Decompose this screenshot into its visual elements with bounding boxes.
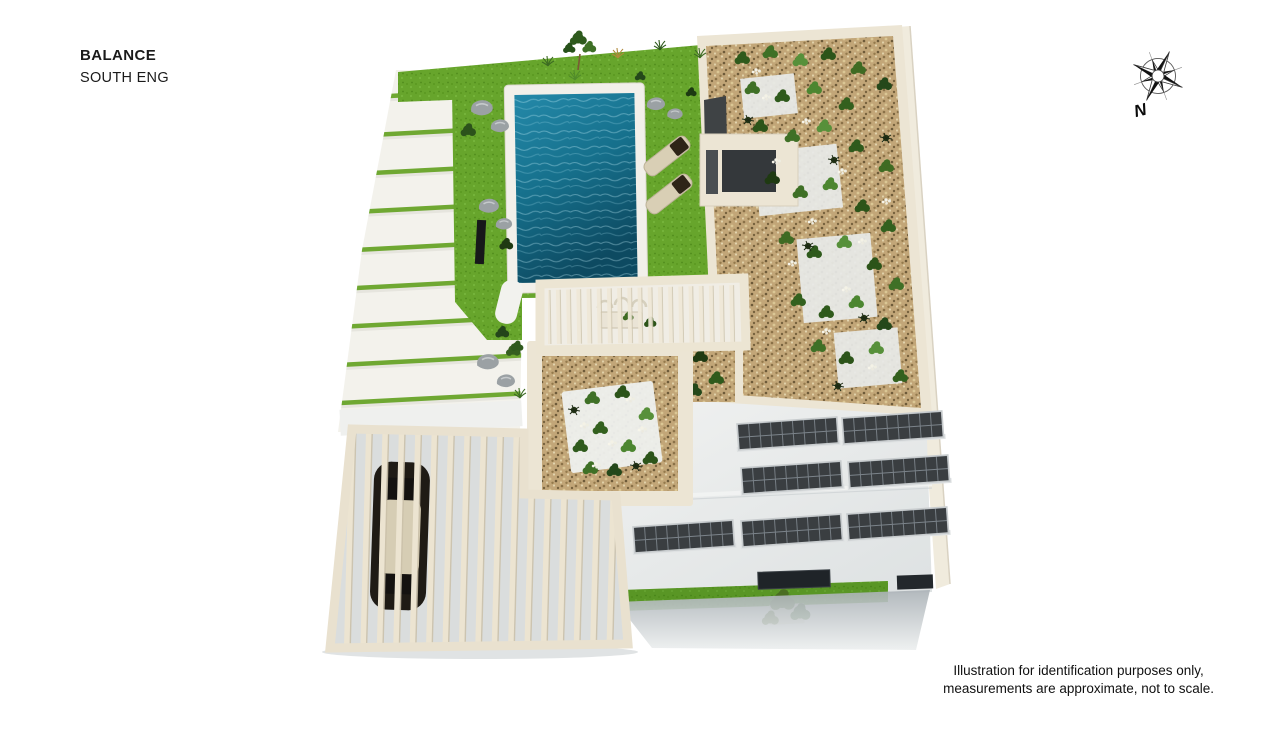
disclaimer-line-1: Illustration for identification purposes… (943, 662, 1214, 680)
page: BALANCE SOUTH ENG N (0, 0, 1280, 731)
courtyard-gravel-garden (527, 341, 693, 506)
skylight (897, 574, 933, 589)
stairwell-opening (722, 150, 776, 192)
disclaimer-line-2: measurements are approximate, not to sca… (943, 680, 1214, 698)
disclaimer: Illustration for identification purposes… (943, 662, 1214, 697)
dining-pergola (540, 278, 746, 350)
glass-canopy (758, 570, 831, 590)
swimming-pool (504, 83, 648, 293)
site-plan-illustration (0, 0, 1280, 731)
